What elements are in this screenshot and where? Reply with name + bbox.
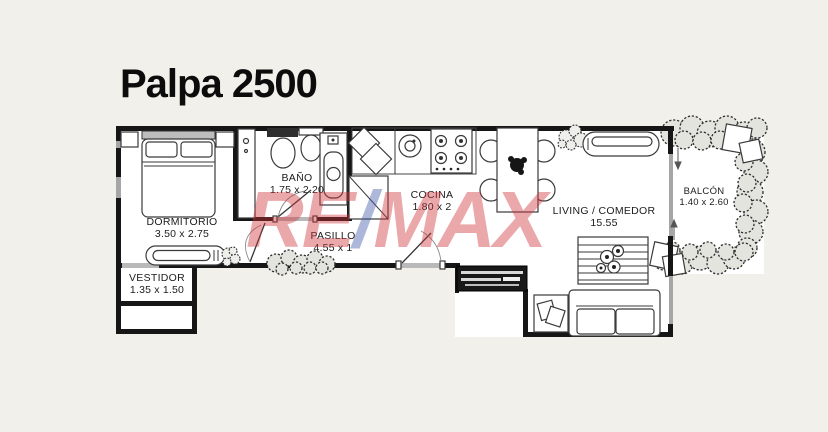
room-label-living: LIVING / COMEDOR 15.55	[553, 205, 656, 229]
bidet	[301, 135, 321, 161]
room-dims: 1.40 x 2.60	[679, 197, 728, 208]
room-label-vestidor: VESTIDOR 1.35 x 1.50	[129, 272, 185, 296]
sink-bowl	[327, 168, 340, 181]
room-name: DORMITORIO	[146, 216, 217, 228]
room-dims: 1.80 x 2	[413, 201, 452, 213]
room-name: BALCÓN	[684, 186, 725, 197]
room-name: BAÑO	[282, 172, 313, 184]
toilet	[271, 138, 295, 168]
room-name: COCINA	[411, 189, 454, 201]
pillow	[181, 142, 212, 157]
toilet-tank	[267, 128, 298, 137]
room-label-cocina: COCINA 1.80 x 2	[411, 189, 454, 213]
room-label-dormitorio: DORMITORIO 3.50 x 2.75	[146, 216, 217, 240]
room-name: PASILLO	[310, 230, 355, 242]
room-dims: 3.50 x 2.75	[155, 228, 209, 240]
room-label-balcon: BALCÓN 1.40 x 2.60	[679, 186, 728, 208]
floor-plan-page: Palpa 2500	[0, 0, 828, 432]
room-label-pasillo: PASILLO 4.55 x 1	[310, 230, 355, 254]
stove	[431, 129, 472, 173]
room-name: VESTIDOR	[129, 272, 185, 284]
room-dims: 1.75 x 2.20	[270, 184, 324, 196]
room-label-bano: BAÑO 1.75 x 2.20	[270, 172, 324, 196]
floor-plan-canvas	[0, 0, 828, 432]
bidet-tank	[299, 128, 323, 135]
plant-bedroom	[222, 247, 240, 266]
room-name: LIVING / COMEDOR	[553, 205, 656, 217]
pillow	[146, 142, 177, 157]
room-dims: 15.55	[590, 217, 617, 229]
room-dims: 1.35 x 1.50	[130, 284, 184, 296]
room-dims: 4.55 x 1	[314, 242, 353, 254]
nightstand-right	[216, 132, 234, 147]
shelf-unit	[457, 266, 527, 291]
nightstand-left	[121, 132, 138, 147]
